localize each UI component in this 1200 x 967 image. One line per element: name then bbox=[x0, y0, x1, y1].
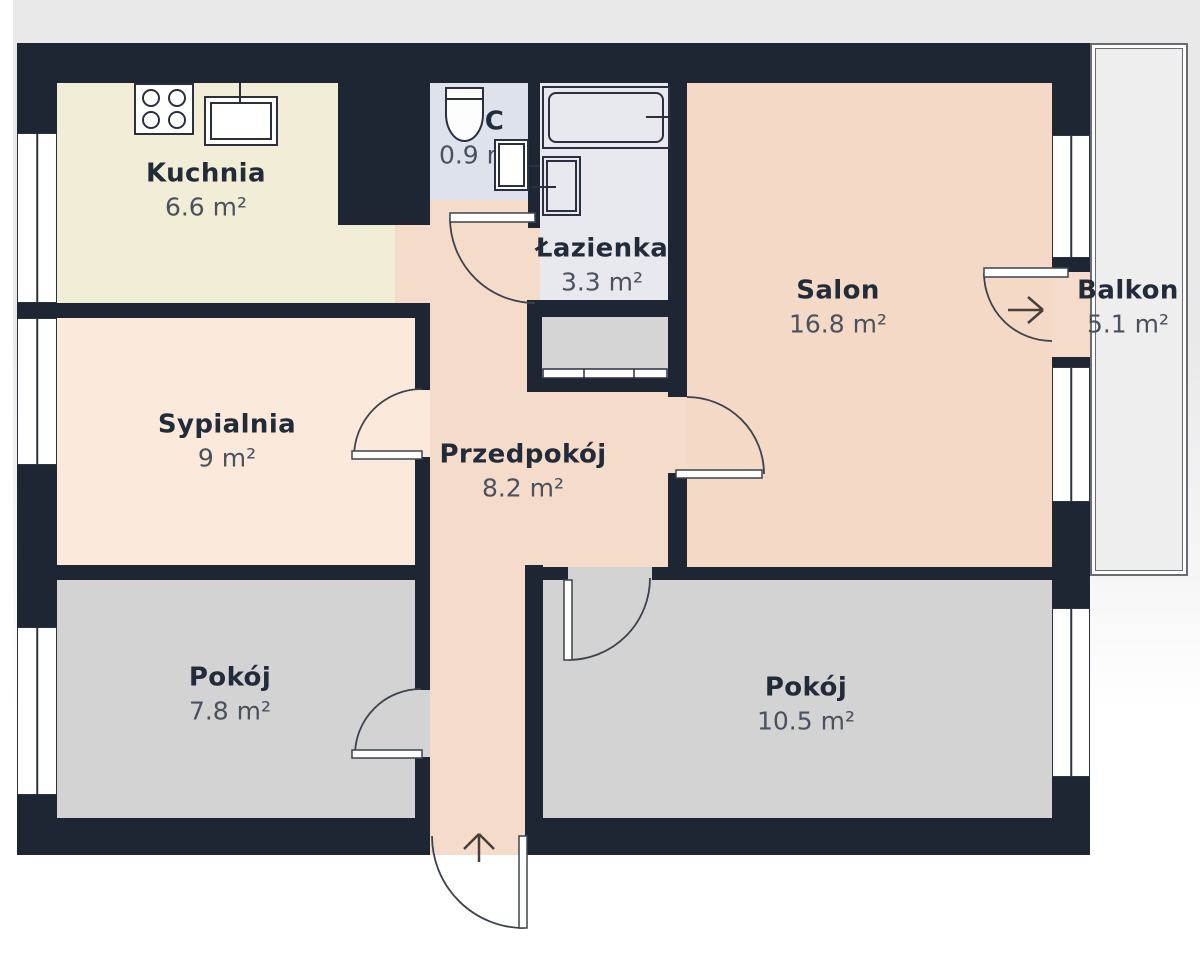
room-label-wc: WC 0.9 m² bbox=[439, 107, 521, 170]
floor-hall-entry-corridor bbox=[430, 567, 525, 855]
wall-room-small-hall-lower bbox=[415, 757, 430, 818]
room-name: Pokój bbox=[757, 673, 855, 703]
floor-living-doorway bbox=[668, 397, 687, 473]
wall-shaft-block bbox=[338, 83, 430, 225]
room-label-pokoj-small: Pokój 7.8 m² bbox=[189, 663, 271, 726]
wall-bedroom-hall-lower bbox=[415, 457, 430, 565]
wall-bedroom-room bbox=[17, 565, 430, 580]
room-name: Balkon bbox=[1077, 276, 1179, 306]
window-living-lower bbox=[1052, 367, 1090, 502]
room-area: 8.2 m² bbox=[439, 474, 606, 503]
wall-bedroom-hall-upper bbox=[415, 318, 430, 390]
room-label-przedpokoj: Przedpokój 8.2 m² bbox=[439, 440, 606, 503]
floor-hall-mid bbox=[430, 303, 527, 392]
floor-plan: Kuchnia 6.6 m² WC 0.9 m² Łazienka 3.3 m²… bbox=[0, 0, 1200, 967]
room-name: Pokój bbox=[189, 663, 271, 693]
floor-room-large-doorway bbox=[568, 567, 652, 580]
floor-wardrobe bbox=[542, 317, 668, 378]
room-label-sypialnia: Sypialnia 9 m² bbox=[158, 410, 296, 473]
room-area: 9 m² bbox=[158, 444, 296, 473]
room-name: Sypialnia bbox=[158, 410, 296, 440]
wall-right-segment bbox=[1052, 777, 1090, 855]
room-label-kuchnia: Kuchnia 6.6 m² bbox=[146, 159, 266, 222]
wall-bathroom-bottom bbox=[540, 300, 668, 317]
room-area: 7.8 m² bbox=[189, 697, 271, 726]
wall-left-segment bbox=[17, 465, 57, 627]
wall-right-segment bbox=[1052, 357, 1090, 367]
room-area: 5.1 m² bbox=[1077, 310, 1179, 339]
room-area: 16.8 m² bbox=[789, 310, 887, 339]
room-label-lazienka: Łazienka 3.3 m² bbox=[536, 234, 668, 297]
room-area: 10.5 m² bbox=[757, 707, 855, 736]
room-name: Łazienka bbox=[536, 234, 668, 264]
wall-living-left-lower bbox=[668, 473, 687, 580]
wall-right-segment bbox=[1052, 83, 1090, 135]
wall-living-room-divider bbox=[652, 567, 1052, 580]
room-name: Salon bbox=[789, 276, 887, 306]
wall-right-segment bbox=[1052, 258, 1090, 272]
room-area: 0.9 m² bbox=[439, 141, 521, 170]
wall-left-segment bbox=[17, 83, 57, 133]
window-bedroom bbox=[17, 318, 57, 465]
window-living-upper bbox=[1052, 135, 1090, 258]
room-area: 3.3 m² bbox=[536, 268, 668, 297]
wall-wc-bathroom bbox=[528, 83, 540, 228]
wall-room-small-hall-upper bbox=[415, 580, 430, 690]
room-name: Przedpokój bbox=[439, 440, 606, 470]
window-room-small bbox=[17, 627, 57, 795]
room-area: 6.6 m² bbox=[146, 193, 266, 222]
floor-hall-upper bbox=[430, 200, 528, 303]
wall-kitchen-bedroom bbox=[17, 303, 430, 318]
wall-right-segment bbox=[1052, 502, 1090, 608]
room-label-pokoj-large: Pokój 10.5 m² bbox=[757, 673, 855, 736]
wall-bottom-left bbox=[17, 818, 430, 855]
wall-top bbox=[17, 43, 1090, 83]
wall-bottom-right bbox=[525, 818, 1090, 855]
room-label-balkon: Balkon 5.1 m² bbox=[1077, 276, 1179, 339]
window-kitchen bbox=[17, 133, 57, 303]
floor-hall-kitchen-opening bbox=[395, 225, 430, 303]
room-label-salon: Salon 16.8 m² bbox=[789, 276, 887, 339]
wall-wardrobe-bottom bbox=[527, 378, 687, 392]
wall-room-large-left bbox=[525, 565, 543, 818]
floor-bedroom-doorway bbox=[415, 390, 430, 457]
room-name: WC bbox=[439, 107, 521, 137]
floor-room-small-doorway bbox=[415, 690, 430, 757]
room-name: Kuchnia bbox=[146, 159, 266, 189]
wall-room-large-top-stub bbox=[543, 567, 568, 580]
window-room-large bbox=[1052, 608, 1090, 777]
wall-living-left-upper bbox=[668, 83, 687, 397]
floor-kitchen-extension bbox=[338, 225, 395, 303]
